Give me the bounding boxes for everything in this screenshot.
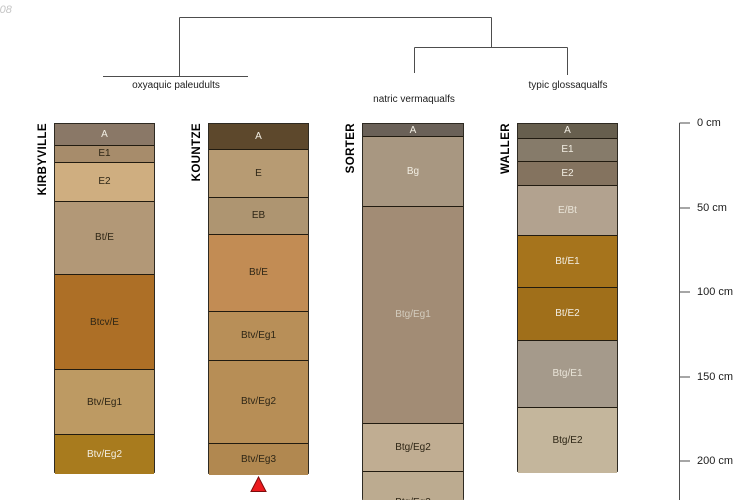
depth-label-100cm: 100 cm bbox=[697, 285, 733, 299]
soil-column-sorter: ABgBtg/Eg1Btg/Eg2Btg/Eg3 bbox=[362, 123, 464, 500]
horizon-sorter-a: A bbox=[363, 124, 463, 137]
horizon-label: Btg/E1 bbox=[552, 368, 582, 379]
horizon-label: Btg/Eg2 bbox=[395, 442, 431, 453]
horizon-label: Btv/Eg1 bbox=[87, 397, 122, 408]
horizon-label: E/Bt bbox=[558, 205, 577, 216]
soil-column-kountze: AEEBBt/EBtv/Eg1Btv/Eg2Btv/Eg3 bbox=[208, 123, 309, 474]
horizon-label: E1 bbox=[98, 148, 110, 159]
group-label-typic-glossaqualfs: typic glossaqualfs bbox=[529, 80, 608, 91]
horizon-label: A bbox=[255, 131, 262, 142]
horizon-kountze-a: A bbox=[209, 124, 308, 150]
horizon-kirbyville-btv-eg1: Btv/Eg1 bbox=[55, 370, 154, 435]
horizon-label: E2 bbox=[561, 168, 573, 179]
horizon-sorter-btg-eg1: Btg/Eg1 bbox=[363, 207, 463, 424]
profile-marker-triangle bbox=[251, 477, 266, 492]
horizon-kirbyville-btv-eg2: Btv/Eg2 bbox=[55, 435, 154, 474]
horizon-label: Bt/E1 bbox=[555, 256, 579, 267]
series-name-kirbyville: KIRBYVILLE bbox=[37, 123, 49, 195]
horizon-label: A bbox=[101, 129, 108, 140]
horizon-sorter-btg-eg2: Btg/Eg2 bbox=[363, 424, 463, 473]
horizon-kirbyville-a: A bbox=[55, 124, 154, 146]
figure-soil-profiles: -08 oxyaquic paleudults natric vermaqual… bbox=[0, 0, 750, 500]
horizon-label: A bbox=[410, 125, 417, 136]
horizon-label: Btv/Eg2 bbox=[241, 396, 276, 407]
horizon-waller-e1: E1 bbox=[518, 139, 617, 162]
depth-label-0cm: 0 cm bbox=[697, 116, 721, 130]
horizon-label: Btv/Eg2 bbox=[87, 449, 122, 460]
horizon-label: Bt/E bbox=[249, 267, 268, 278]
horizon-kountze-bt-e: Bt/E bbox=[209, 235, 308, 313]
horizon-label: Bg bbox=[407, 166, 419, 177]
horizon-waller-bt-e1: Bt/E1 bbox=[518, 236, 617, 288]
horizon-waller-bt-e2: Bt/E2 bbox=[518, 288, 617, 341]
horizon-waller-e-bt: E/Bt bbox=[518, 186, 617, 236]
horizon-label: E bbox=[255, 168, 262, 179]
horizon-label: A bbox=[564, 125, 571, 136]
horizon-kountze-btv-eg2: Btv/Eg2 bbox=[209, 361, 308, 444]
soil-column-kirbyville: AE1E2Bt/EBtcv/EBtv/Eg1Btv/Eg2 bbox=[54, 123, 155, 473]
horizon-kirbyville-e1: E1 bbox=[55, 146, 154, 164]
depth-label-50cm: 50 cm bbox=[697, 201, 727, 215]
horizon-label: Bt/E bbox=[95, 232, 114, 243]
horizon-kountze-btv-eg1: Btv/Eg1 bbox=[209, 312, 308, 361]
horizon-kirbyville-btcv-e: Btcv/E bbox=[55, 275, 154, 370]
horizon-label: Btv/Eg1 bbox=[241, 330, 276, 341]
horizon-label: EB bbox=[252, 210, 265, 221]
horizon-kirbyville-e2: E2 bbox=[55, 163, 154, 202]
horizon-label: E2 bbox=[98, 176, 110, 187]
horizon-label: E1 bbox=[561, 144, 573, 155]
horizon-waller-a: A bbox=[518, 124, 617, 139]
horizon-kirbyville-bt-e: Bt/E bbox=[55, 202, 154, 276]
horizon-waller-btg-e1: Btg/E1 bbox=[518, 341, 617, 409]
horizon-label: Btcv/E bbox=[90, 317, 119, 328]
horizon-label: Btg/E2 bbox=[552, 435, 582, 446]
horizon-waller-e2: E2 bbox=[518, 162, 617, 187]
group-label-natric-vermaqualfs: natric vermaqualfs bbox=[373, 94, 455, 105]
horizon-label: Btg/Eg1 bbox=[395, 309, 431, 320]
horizon-waller-btg-e2: Btg/E2 bbox=[518, 408, 617, 473]
horizon-label: Bt/E2 bbox=[555, 308, 579, 319]
horizon-label: Btv/Eg3 bbox=[241, 454, 276, 465]
depth-label-200cm: 200 cm bbox=[697, 454, 733, 468]
horizon-sorter-btg-eg3: Btg/Eg3 bbox=[363, 472, 463, 500]
horizon-kountze-e: E bbox=[209, 150, 308, 199]
series-name-sorter: SORTER bbox=[345, 123, 357, 173]
series-name-kountze: KOUNTZE bbox=[191, 123, 203, 181]
series-name-waller: WALLER bbox=[500, 123, 512, 174]
horizon-kountze-eb: EB bbox=[209, 198, 308, 235]
horizon-sorter-bg: Bg bbox=[363, 137, 463, 207]
horizon-kountze-btv-eg3: Btv/Eg3 bbox=[209, 444, 308, 476]
soil-column-waller: AE1E2E/BtBt/E1Bt/E2Btg/E1Btg/E2 bbox=[517, 123, 618, 472]
group-label-oxyaquic-paleudults: oxyaquic paleudults bbox=[132, 80, 220, 91]
depth-label-150cm: 150 cm bbox=[697, 370, 733, 384]
